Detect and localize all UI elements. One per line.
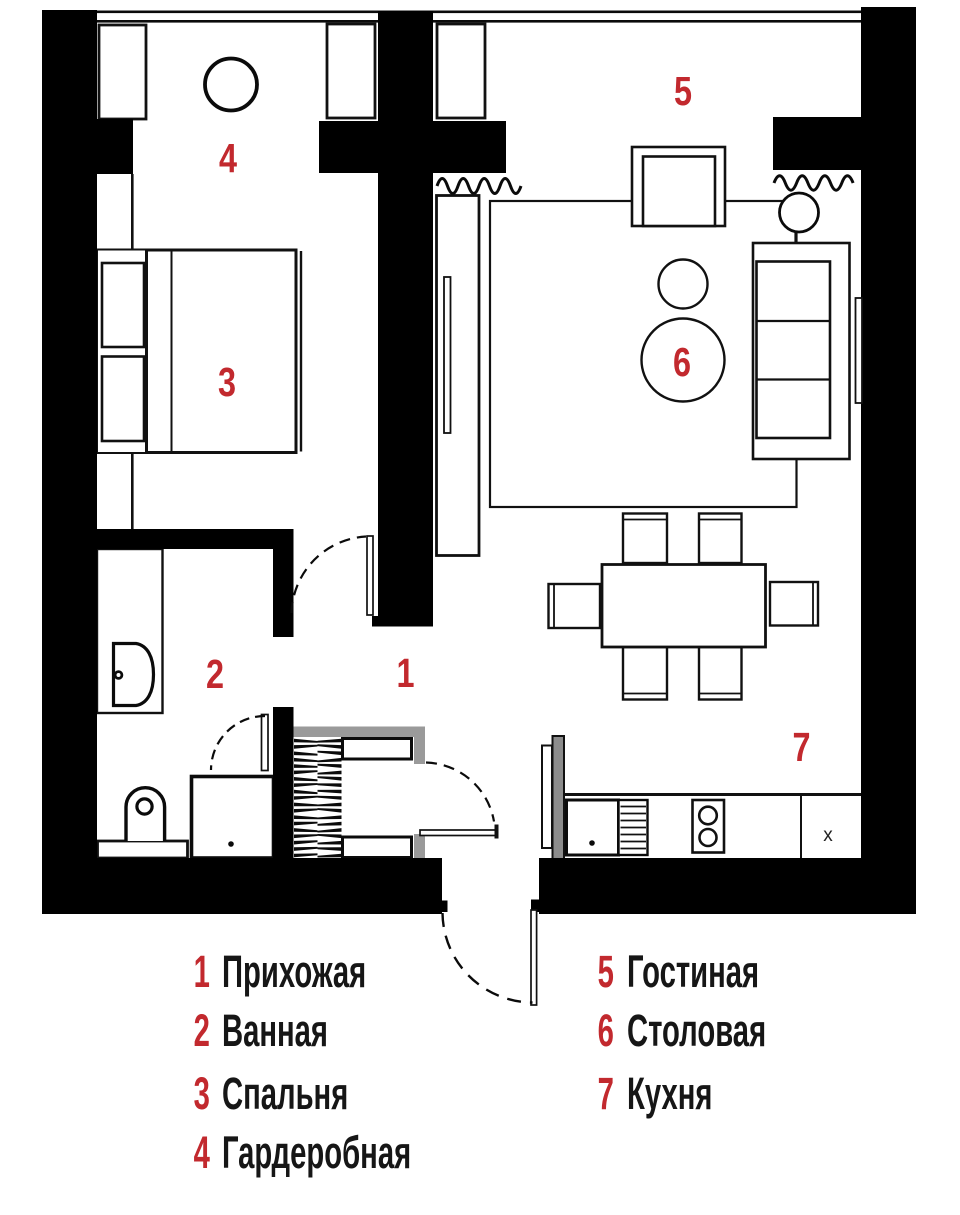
svg-text:x: x bbox=[823, 825, 833, 846]
svg-text:5: 5 bbox=[674, 69, 692, 114]
svg-text:5: 5 bbox=[598, 948, 614, 998]
svg-text:3: 3 bbox=[218, 360, 236, 405]
svg-text:2: 2 bbox=[206, 652, 224, 697]
svg-text:Гостиная: Гостиная bbox=[627, 948, 759, 998]
svg-text:Ванная: Ванная bbox=[222, 1007, 328, 1057]
svg-text:1: 1 bbox=[194, 948, 210, 998]
svg-text:2: 2 bbox=[194, 1007, 210, 1057]
svg-text:Прихожая: Прихожая bbox=[222, 948, 366, 998]
svg-text:Кухня: Кухня bbox=[627, 1070, 712, 1120]
svg-text:7: 7 bbox=[793, 725, 811, 770]
svg-text:7: 7 bbox=[598, 1070, 614, 1120]
svg-text:4: 4 bbox=[219, 136, 238, 181]
svg-text:Спальня: Спальня bbox=[222, 1070, 348, 1120]
svg-text:3: 3 bbox=[194, 1070, 210, 1120]
svg-text:4: 4 bbox=[194, 1129, 210, 1179]
svg-text:6: 6 bbox=[673, 340, 691, 385]
svg-text:Столовая: Столовая bbox=[627, 1007, 766, 1057]
svg-text:6: 6 bbox=[598, 1007, 614, 1057]
svg-text:1: 1 bbox=[397, 651, 415, 696]
svg-text:Гардеробная: Гардеробная bbox=[222, 1129, 411, 1179]
